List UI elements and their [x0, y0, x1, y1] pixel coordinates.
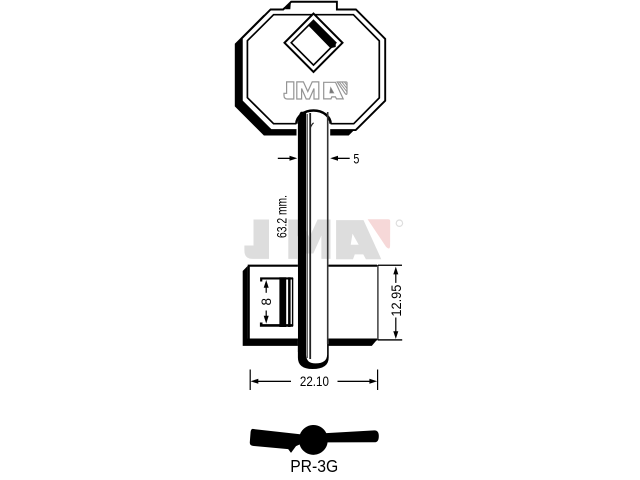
svg-text:12.95: 12.95 — [388, 284, 404, 316]
svg-text:8: 8 — [259, 298, 274, 306]
svg-text:5: 5 — [353, 150, 359, 166]
svg-text:22.10: 22.10 — [300, 373, 329, 389]
svg-text:63.2 mm.: 63.2 mm. — [274, 195, 290, 238]
svg-text:PR-3G: PR-3G — [290, 456, 338, 476]
